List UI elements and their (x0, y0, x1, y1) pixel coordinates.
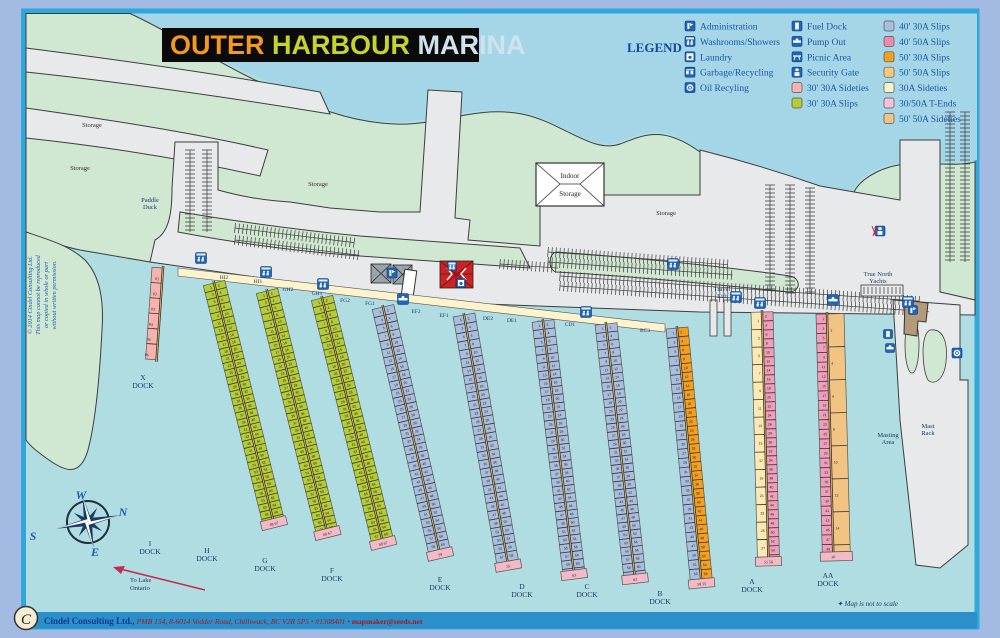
svg-text:13: 13 (676, 387, 680, 391)
svg-text:63: 63 (572, 572, 577, 577)
svg-text:4: 4 (765, 324, 767, 328)
svg-text:37: 37 (825, 490, 829, 494)
svg-text:27: 27 (612, 434, 616, 438)
svg-text:49: 49 (826, 547, 830, 551)
svg-text:40: 40 (565, 479, 569, 483)
svg-text:10: 10 (834, 460, 838, 464)
svg-text:36: 36 (563, 462, 567, 466)
svg-text:54: 54 (771, 548, 775, 552)
svg-text:19: 19 (679, 414, 683, 418)
svg-text:22: 22 (619, 408, 623, 412)
svg-text:33: 33 (615, 459, 619, 463)
svg-text:44: 44 (568, 496, 572, 500)
svg-text:HI2: HI2 (220, 275, 229, 281)
svg-text:45: 45 (826, 528, 830, 532)
svg-text:46: 46 (770, 512, 774, 516)
svg-text:Pump Out: Pump Out (807, 38, 846, 48)
svg-text:44: 44 (629, 499, 633, 503)
svg-text:21: 21 (609, 409, 613, 413)
svg-text:17: 17 (759, 459, 763, 463)
svg-text:58: 58 (575, 553, 579, 557)
svg-text:Security Gate: Security Gate (807, 69, 859, 79)
svg-text:57: 57 (626, 558, 630, 562)
svg-text:24: 24 (690, 429, 694, 433)
svg-text:18: 18 (767, 386, 771, 390)
svg-text:16: 16 (553, 380, 557, 384)
svg-text:10: 10 (766, 351, 770, 355)
svg-text:43: 43 (619, 500, 623, 504)
svg-text:42: 42 (697, 509, 701, 513)
svg-text:EF2: EF2 (411, 309, 420, 315)
svg-text:16: 16 (616, 383, 620, 387)
svg-text:17: 17 (678, 405, 682, 409)
svg-text:44: 44 (770, 503, 774, 507)
svg-text:28: 28 (691, 446, 695, 450)
svg-text:50: 50 (701, 545, 705, 549)
svg-text:19: 19 (760, 476, 764, 480)
svg-text:33: 33 (553, 455, 557, 459)
svg-text:46: 46 (569, 504, 573, 508)
svg-text:41: 41 (618, 492, 622, 496)
svg-text:47: 47 (826, 538, 830, 542)
svg-text:53: 53 (694, 572, 698, 576)
svg-text:29: 29 (551, 439, 555, 443)
svg-text:To LakeOntario: To LakeOntario (130, 577, 151, 592)
svg-text:PaddleDuck: PaddleDuck (141, 197, 159, 211)
svg-text:35: 35 (554, 464, 558, 468)
svg-text:39: 39 (617, 483, 621, 487)
svg-text:8: 8 (766, 342, 768, 346)
svg-text:30: 30 (768, 440, 772, 444)
svg-text:56: 56 (704, 572, 708, 576)
svg-text:55 56: 55 56 (764, 559, 773, 564)
svg-text:15: 15 (759, 441, 763, 445)
svg-text:Storage: Storage (70, 165, 90, 172)
svg-text:40: 40 (697, 500, 701, 504)
svg-text:2: 2 (830, 329, 832, 333)
svg-text:25: 25 (681, 442, 685, 446)
svg-text:13: 13 (822, 375, 826, 379)
svg-text:38: 38 (626, 474, 630, 478)
svg-text:18: 18 (554, 388, 558, 392)
svg-text:38: 38 (696, 491, 700, 495)
svg-text:Picnic Area: Picnic Area (807, 53, 852, 63)
svg-text:52: 52 (702, 554, 706, 558)
svg-text:38: 38 (769, 476, 773, 480)
svg-text:42: 42 (567, 487, 571, 491)
svg-text:17: 17 (822, 394, 826, 398)
svg-text:22: 22 (689, 420, 693, 424)
svg-text:E: E (90, 545, 99, 559)
svg-text:59: 59 (627, 566, 631, 570)
svg-text:19: 19 (823, 403, 827, 407)
svg-text:50: 50 (632, 524, 636, 528)
svg-text:56: 56 (635, 548, 639, 552)
svg-text:16: 16 (686, 393, 690, 397)
svg-text:41: 41 (825, 509, 829, 513)
svg-text:34: 34 (562, 454, 566, 458)
svg-text:Fuel Dock: Fuel Dock (807, 23, 847, 33)
svg-text:49: 49 (692, 553, 696, 557)
svg-text:32: 32 (623, 449, 627, 453)
svg-text:19: 19 (608, 401, 612, 405)
svg-text:28: 28 (559, 430, 563, 434)
svg-text:53: 53 (624, 541, 628, 545)
svg-text:26: 26 (768, 422, 772, 426)
svg-text:40' 30A Slips: 40' 30A Slips (899, 23, 950, 33)
svg-text:FG1: FG1 (365, 301, 375, 307)
svg-text:27: 27 (761, 546, 765, 550)
svg-text:57: 57 (565, 554, 569, 558)
svg-text:36: 36 (625, 466, 629, 470)
svg-text:C: C (21, 612, 32, 628)
svg-text:W: W (76, 488, 88, 502)
svg-text:51: 51 (623, 533, 627, 537)
svg-text:47: 47 (560, 513, 564, 517)
svg-text:5: 5 (758, 354, 760, 358)
svg-text:This map cannot be reproduced: This map cannot be reproduced (35, 254, 42, 334)
svg-text:40: 40 (770, 485, 774, 489)
svg-text:12: 12 (551, 364, 555, 368)
svg-text:14: 14 (766, 369, 770, 373)
svg-text:14: 14 (615, 375, 619, 379)
svg-text:Administration: Administration (700, 23, 758, 33)
svg-text:50' 50A Sideties: 50' 50A Sideties (899, 115, 961, 125)
svg-text:8: 8 (833, 428, 835, 432)
svg-text:43: 43 (826, 519, 830, 523)
svg-text:without written permission.: without written permission. (51, 260, 58, 329)
svg-text:Garbage/Recycling: Garbage/Recycling (700, 69, 774, 79)
svg-text:63: 63 (633, 577, 638, 582)
svg-text:60: 60 (576, 561, 580, 565)
svg-text:42: 42 (628, 491, 632, 495)
svg-text:33: 33 (824, 471, 828, 475)
svg-text:46: 46 (630, 507, 634, 511)
svg-text:50: 50 (571, 520, 575, 524)
svg-text:25: 25 (611, 426, 615, 430)
svg-text:28: 28 (768, 431, 772, 435)
svg-text:GH1: GH1 (312, 291, 323, 297)
svg-text:59: 59 (566, 563, 570, 567)
svg-text:18: 18 (687, 402, 691, 406)
svg-text:21: 21 (679, 424, 683, 428)
svg-text:45: 45 (559, 505, 563, 509)
svg-text:17: 17 (607, 393, 611, 397)
svg-text:35: 35 (686, 488, 690, 492)
svg-text:17: 17 (545, 390, 549, 394)
svg-text:10: 10 (613, 359, 617, 363)
svg-text:47: 47 (691, 544, 695, 548)
svg-text:4: 4 (831, 362, 833, 366)
svg-text:15: 15 (544, 381, 548, 385)
svg-text:Storage: Storage (82, 122, 102, 129)
svg-text:54: 54 (634, 540, 638, 544)
svg-text:41: 41 (688, 516, 692, 520)
svg-text:15: 15 (677, 396, 681, 400)
svg-text:55: 55 (506, 563, 511, 569)
svg-text:37: 37 (555, 472, 559, 476)
svg-text:21: 21 (823, 413, 827, 417)
svg-text:29: 29 (613, 442, 617, 446)
svg-text:24: 24 (620, 416, 624, 420)
svg-text:3: 3 (758, 336, 760, 340)
svg-text:S: S (30, 529, 37, 543)
svg-text:45: 45 (620, 508, 624, 512)
svg-text:33: 33 (685, 479, 689, 483)
svg-text:30/50A T-Ends: 30/50A T-Ends (899, 100, 957, 110)
svg-text:30' 30A Slips: 30' 30A Slips (807, 100, 858, 110)
svg-text:14: 14 (552, 372, 556, 376)
svg-text:25: 25 (549, 422, 553, 426)
svg-text:29: 29 (824, 451, 828, 455)
svg-text:51: 51 (693, 563, 697, 567)
svg-text:18: 18 (617, 392, 621, 396)
svg-text:31: 31 (552, 447, 556, 451)
svg-text:06: 06 (145, 352, 149, 357)
svg-text:40: 40 (627, 482, 631, 486)
svg-text:49: 49 (561, 521, 565, 525)
svg-text:48: 48 (631, 515, 635, 519)
svg-text:16: 16 (767, 377, 771, 381)
svg-text:30' 30A Sideties: 30' 30A Sideties (807, 84, 869, 94)
svg-text:22: 22 (556, 405, 560, 409)
svg-text:50' 30A Slips: 50' 30A Slips (899, 53, 950, 63)
svg-text:51: 51 (562, 530, 566, 534)
svg-text:30: 30 (560, 438, 564, 442)
svg-text:23: 23 (823, 423, 827, 427)
svg-text:32: 32 (561, 446, 565, 450)
svg-text:MastRack: MastRack (921, 423, 935, 437)
svg-text:26: 26 (621, 424, 625, 428)
svg-text:Cindel Consulting Ltd., PMB 15: Cindel Consulting Ltd., PMB 154, 8-6014 … (44, 616, 423, 626)
svg-text:7: 7 (759, 372, 761, 376)
svg-text:13: 13 (605, 376, 609, 380)
svg-text:21: 21 (547, 406, 551, 410)
svg-text:11: 11 (604, 368, 608, 372)
svg-text:37: 37 (687, 498, 691, 502)
svg-text:48: 48 (700, 536, 704, 540)
svg-text:BC3: BC3 (640, 328, 650, 334)
svg-text:LEGEND: LEGEND (627, 40, 682, 55)
svg-text:36: 36 (695, 482, 699, 486)
svg-text:1: 1 (757, 319, 759, 323)
svg-text:EF1: EF1 (439, 313, 448, 319)
svg-text:36: 36 (769, 467, 773, 471)
svg-text:58: 58 (636, 557, 640, 561)
svg-text:60: 60 (637, 565, 641, 569)
svg-text:9: 9 (823, 355, 825, 359)
svg-text:10: 10 (684, 366, 688, 370)
svg-text:CD1: CD1 (565, 322, 576, 328)
svg-text:39: 39 (825, 499, 829, 503)
svg-text:21: 21 (760, 494, 764, 498)
svg-text:43: 43 (558, 497, 562, 501)
svg-text:44: 44 (698, 518, 702, 522)
svg-text:32: 32 (769, 449, 773, 453)
svg-text:30A Sideties: 30A Sideties (899, 84, 948, 94)
svg-text:11: 11 (758, 407, 762, 411)
svg-text:DE1: DE1 (507, 318, 517, 324)
svg-text:31: 31 (614, 450, 618, 454)
svg-text:54: 54 (573, 537, 577, 541)
svg-text:20: 20 (688, 411, 692, 415)
svg-text:Storage: Storage (656, 210, 676, 217)
svg-text:6: 6 (766, 333, 768, 337)
svg-text:02: 02 (153, 291, 157, 296)
svg-text:45: 45 (690, 535, 694, 539)
svg-text:Storage: Storage (308, 181, 328, 188)
svg-text:23: 23 (610, 417, 614, 421)
svg-text:15: 15 (606, 384, 610, 388)
svg-text:43: 43 (689, 526, 693, 530)
svg-text:55: 55 (625, 549, 629, 553)
svg-text:35: 35 (825, 480, 829, 484)
svg-text:41: 41 (557, 488, 561, 492)
svg-text:53: 53 (563, 538, 567, 542)
svg-text:19: 19 (546, 398, 550, 402)
svg-text:40' 50A Slips: 40' 50A Slips (899, 38, 950, 48)
svg-text:05: 05 (147, 337, 151, 342)
svg-text:22: 22 (767, 404, 771, 408)
svg-text:30: 30 (831, 554, 835, 559)
svg-text:11: 11 (675, 377, 679, 381)
svg-text:N: N (118, 505, 129, 519)
svg-text:12: 12 (766, 360, 770, 364)
svg-text:46: 46 (699, 527, 703, 531)
svg-text:23: 23 (760, 511, 764, 515)
svg-text:10: 10 (550, 355, 554, 359)
svg-text:39: 39 (687, 507, 691, 511)
svg-text:5: 5 (823, 336, 825, 340)
svg-text:DE2: DE2 (483, 316, 493, 322)
svg-text:✦ Map is not to scale: ✦ Map is not to scale (837, 600, 898, 608)
svg-text:38: 38 (564, 471, 568, 475)
svg-text:24: 24 (557, 413, 561, 417)
svg-text:or copied in whole or part: or copied in whole or part (43, 262, 50, 329)
svg-text:58 55: 58 55 (697, 581, 706, 587)
svg-text:23: 23 (548, 414, 552, 418)
svg-text:25: 25 (823, 432, 827, 436)
svg-text:1: 1 (822, 317, 824, 321)
svg-text:47: 47 (621, 516, 625, 520)
svg-text:Washrooms/Showers: Washrooms/Showers (700, 38, 780, 48)
svg-text:25: 25 (761, 529, 765, 533)
svg-text:49: 49 (622, 525, 626, 529)
svg-text:24: 24 (768, 413, 772, 417)
svg-text:30: 30 (622, 441, 626, 445)
svg-text:27: 27 (682, 451, 686, 455)
svg-text:48: 48 (570, 512, 574, 516)
svg-text:12: 12 (835, 493, 839, 497)
svg-text:2: 2 (765, 315, 767, 319)
svg-text:56: 56 (574, 545, 578, 549)
svg-text:55: 55 (564, 546, 568, 550)
svg-text:01: 01 (155, 276, 159, 281)
svg-text:20: 20 (555, 397, 559, 401)
svg-text:34: 34 (694, 473, 698, 477)
svg-text:Oil Recyling: Oil Recyling (700, 84, 749, 94)
svg-text:GH2: GH2 (283, 287, 294, 293)
svg-text:HI1: HI1 (254, 279, 263, 285)
svg-text:13: 13 (758, 424, 762, 428)
svg-text:54: 54 (703, 563, 707, 567)
svg-text:15: 15 (822, 384, 826, 388)
svg-text:37: 37 (616, 475, 620, 479)
svg-text:32: 32 (693, 464, 697, 468)
svg-text:52: 52 (771, 539, 775, 543)
svg-text:30: 30 (692, 455, 696, 459)
svg-text:20: 20 (618, 400, 622, 404)
svg-text:48: 48 (770, 521, 774, 525)
svg-text:27: 27 (824, 442, 828, 446)
svg-text:50: 50 (771, 530, 775, 534)
svg-text:28: 28 (621, 433, 625, 437)
svg-text:52: 52 (572, 528, 576, 532)
svg-text:39: 39 (556, 480, 560, 484)
svg-text:35: 35 (615, 467, 619, 471)
svg-text:27: 27 (550, 431, 554, 435)
svg-text:13: 13 (543, 373, 547, 377)
svg-text:50' 50A Slips: 50' 50A Slips (899, 69, 950, 79)
svg-text:FG2: FG2 (340, 298, 350, 304)
svg-text:23: 23 (680, 433, 684, 437)
svg-text:26: 26 (691, 438, 695, 442)
svg-text:12: 12 (614, 367, 618, 371)
svg-text:12: 12 (685, 375, 689, 379)
svg-text:42: 42 (770, 494, 774, 498)
svg-text:7: 7 (823, 346, 825, 350)
svg-text:03: 03 (151, 306, 155, 311)
svg-text:31: 31 (684, 470, 688, 474)
svg-text:11: 11 (542, 365, 546, 369)
svg-text:Storage: Storage (559, 190, 580, 198)
svg-text:9: 9 (759, 389, 761, 393)
svg-text:Indoor: Indoor (561, 172, 580, 180)
svg-text:26: 26 (558, 421, 562, 425)
svg-text:© 2014 Cindel Consulting Ltd.: © 2014 Cindel Consulting Ltd. (27, 256, 34, 334)
svg-text:04: 04 (149, 322, 153, 327)
svg-text:34: 34 (624, 457, 628, 461)
svg-text:OUTER HARBOUR MARINA: OUTER HARBOUR MARINA (170, 30, 526, 60)
svg-text:20: 20 (767, 395, 771, 399)
svg-text:14: 14 (836, 526, 840, 530)
svg-text:11: 11 (822, 365, 826, 369)
svg-text:34: 34 (769, 458, 773, 462)
svg-text:31: 31 (824, 461, 828, 465)
svg-text:6: 6 (832, 395, 834, 399)
svg-text:Laundry: Laundry (700, 53, 732, 63)
svg-text:14: 14 (685, 384, 689, 388)
svg-text:3: 3 (822, 327, 824, 331)
svg-text:29: 29 (683, 461, 687, 465)
svg-text:52: 52 (633, 532, 637, 536)
